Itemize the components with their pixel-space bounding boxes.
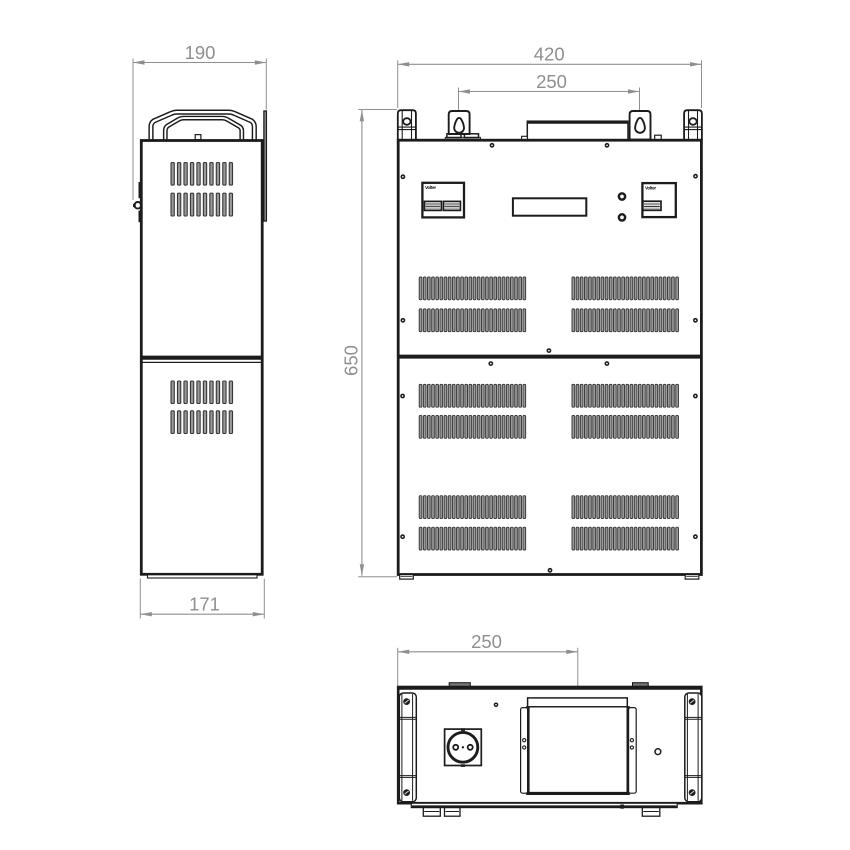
svg-text:190: 190	[185, 42, 216, 63]
svg-text:171: 171	[189, 594, 220, 615]
svg-text:250: 250	[536, 71, 567, 92]
svg-text:Volter: Volter	[645, 185, 656, 190]
svg-text:650: 650	[340, 345, 361, 376]
svg-text:Volter: Volter	[425, 185, 436, 190]
svg-text:250: 250	[471, 631, 502, 652]
svg-text:420: 420	[534, 44, 565, 65]
